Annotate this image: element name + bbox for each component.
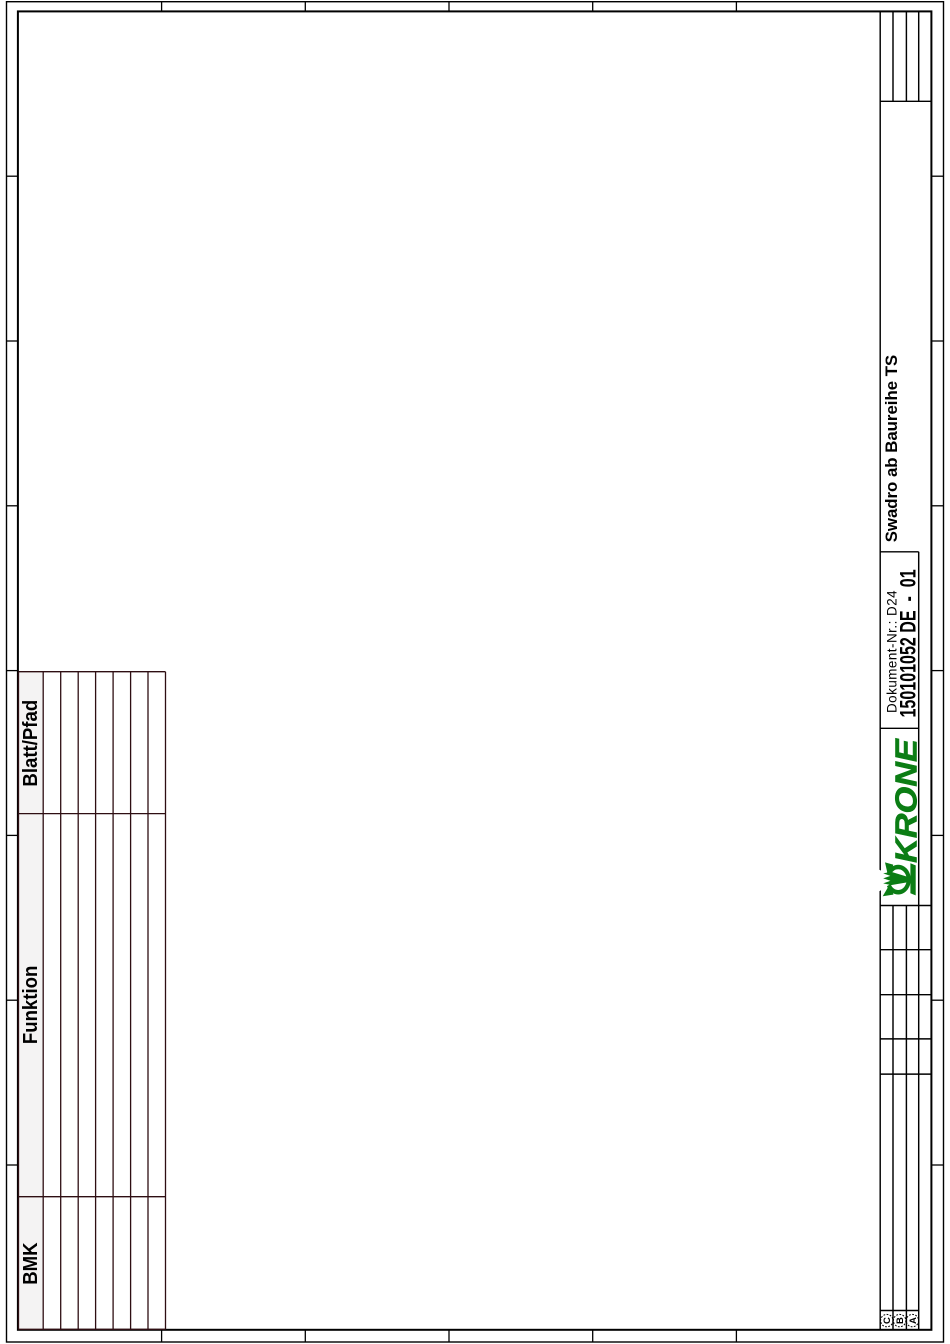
svg-text:Blatt/Pfad: Blatt/Pfad (21, 700, 43, 787)
svg-text:KRONE: KRONE (888, 738, 923, 863)
svg-text:BMK: BMK (21, 1242, 43, 1284)
svg-text:A: A (908, 1317, 919, 1324)
svg-text:C: C (882, 1317, 893, 1324)
svg-text:Funktion: Funktion (21, 966, 43, 1044)
svg-text:150101052 DE - 01: 150101052 DE - 01 (897, 569, 921, 717)
svg-text:Swadro ab Baureihe TS: Swadro ab Baureihe TS (882, 355, 901, 542)
svg-text:B: B (895, 1317, 906, 1324)
